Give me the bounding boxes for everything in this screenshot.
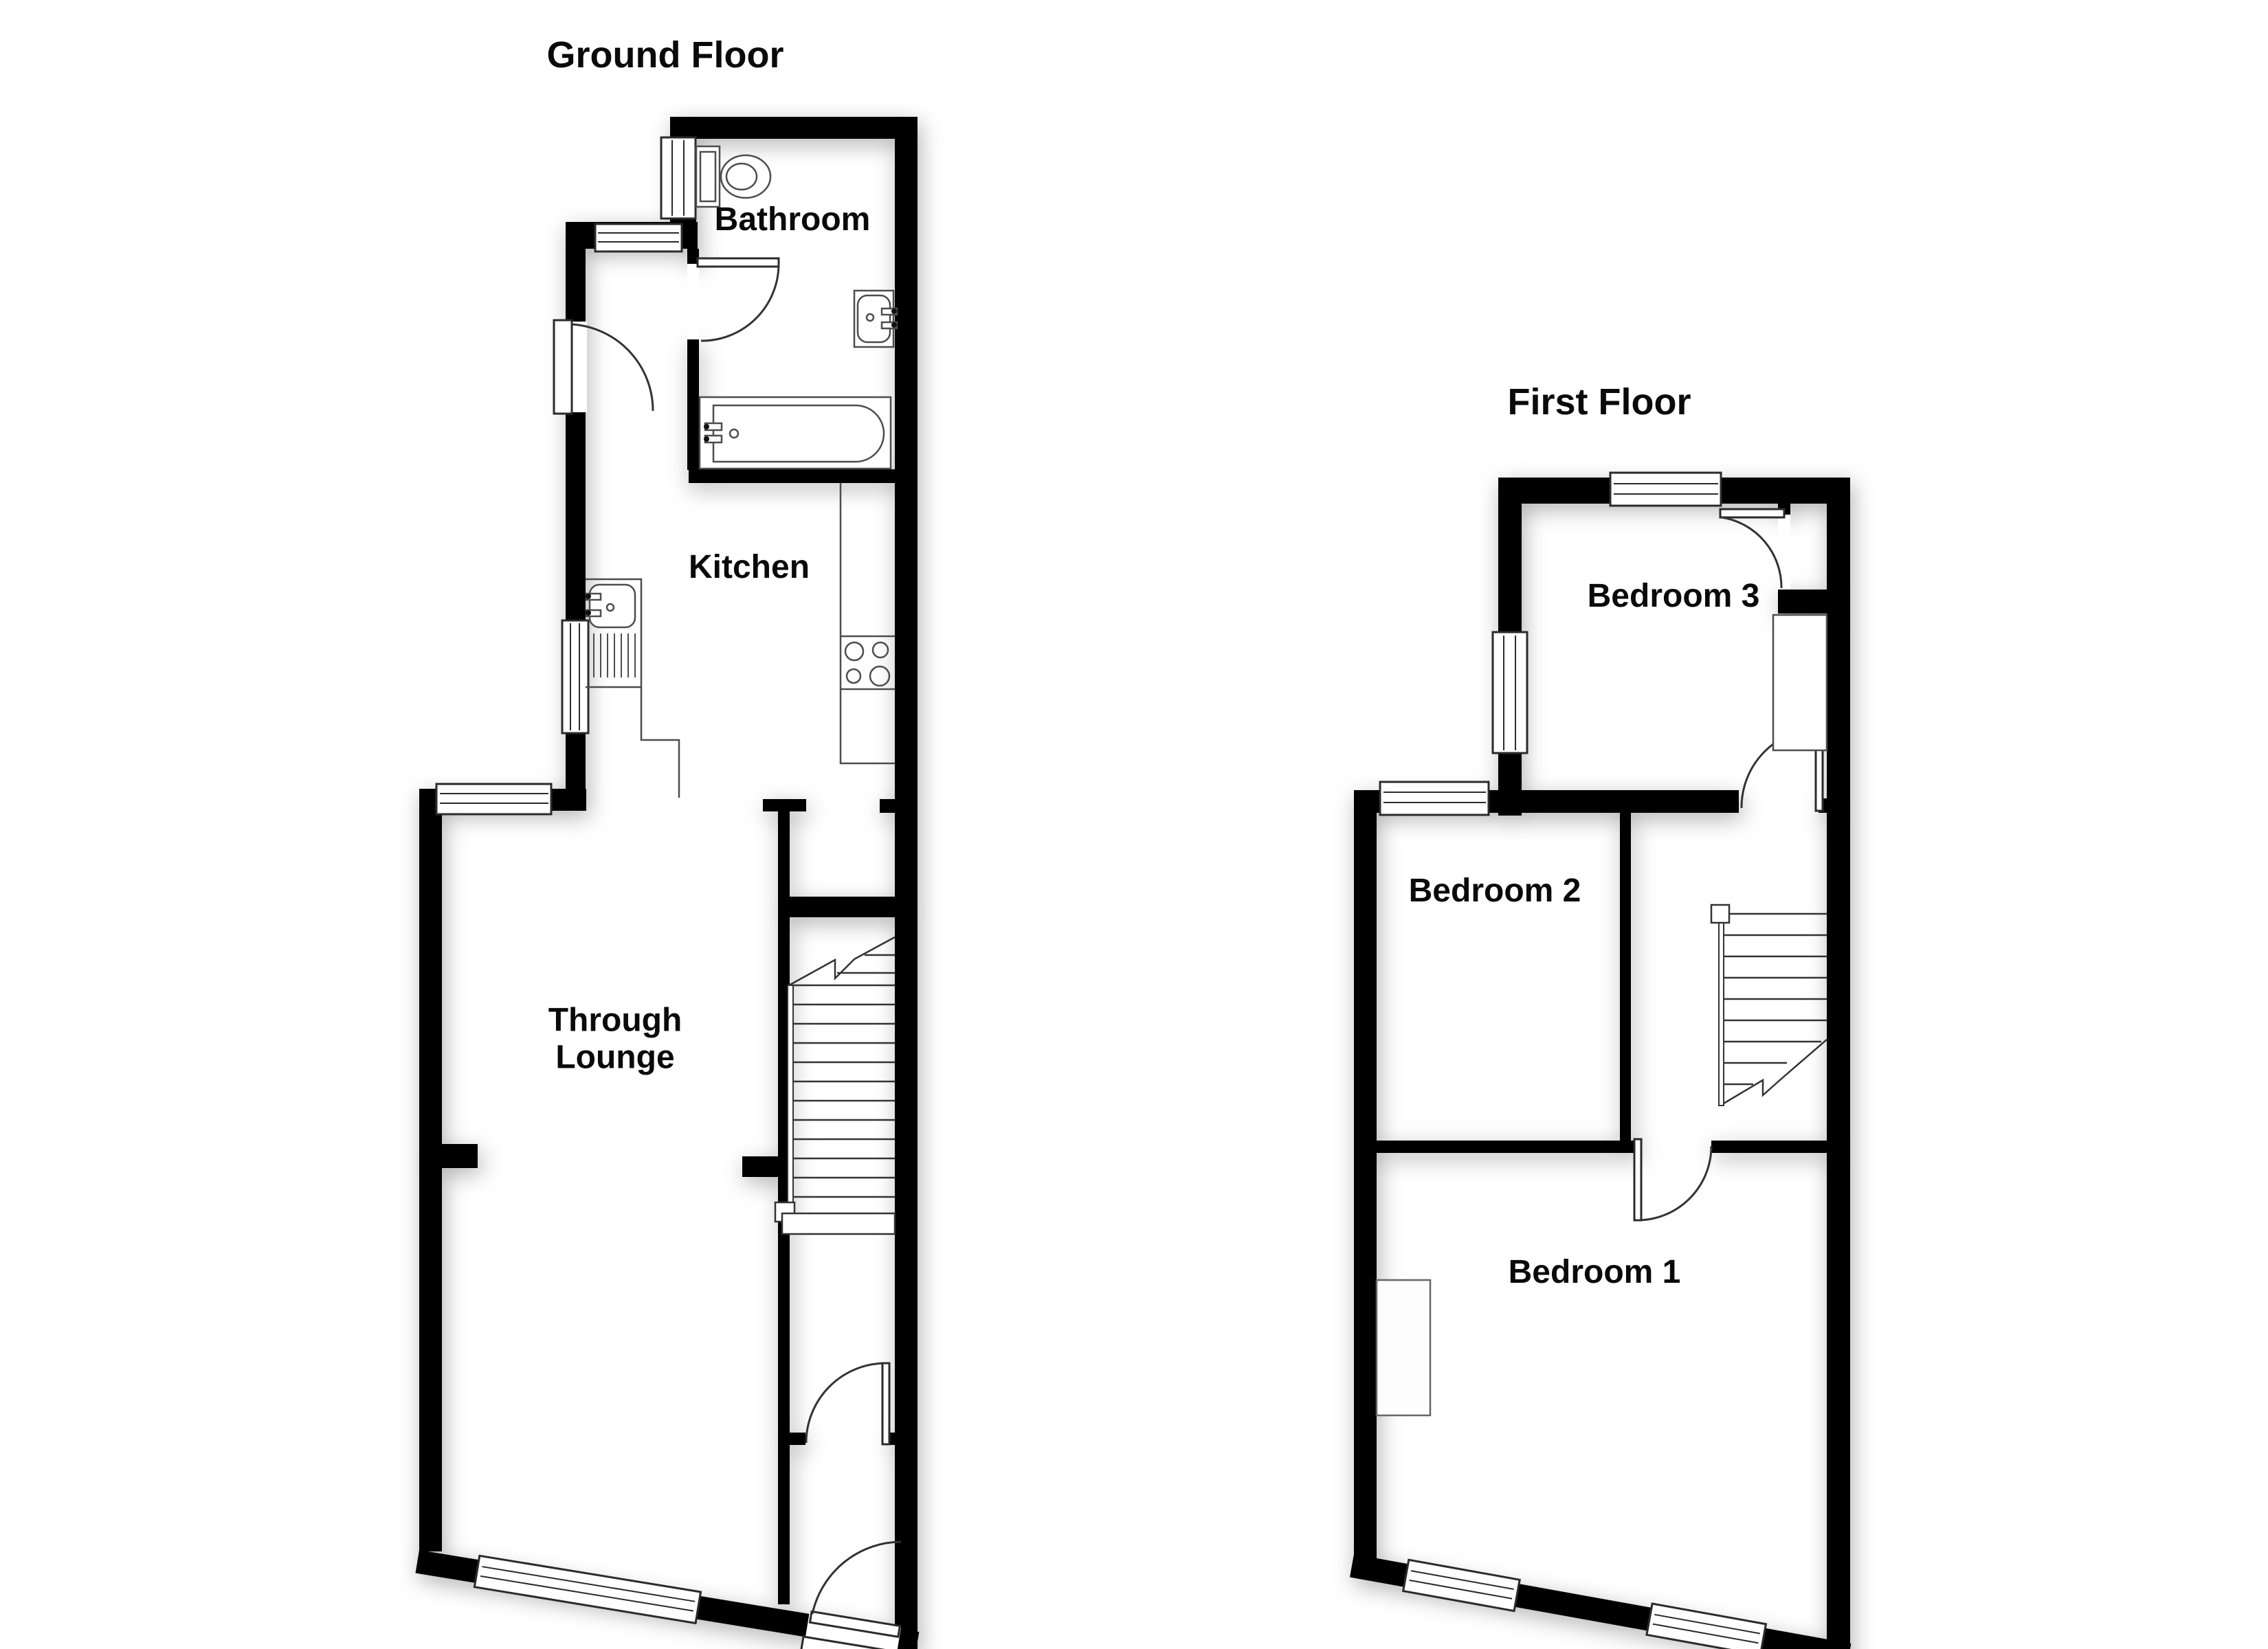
ground-floor-title: Ground Floor xyxy=(547,34,784,76)
room-label-kitchen: Kitchen xyxy=(689,549,810,586)
room-label-bedroom3: Bedroom 3 xyxy=(1588,578,1760,615)
room-label-bathroom: Bathroom xyxy=(715,201,871,238)
room-label-lounge: Through Lounge xyxy=(502,1002,729,1076)
labels-layer: Ground Floor First Floor Bathroom Kitche… xyxy=(0,0,2268,1649)
room-label-bedroom1: Bedroom 1 xyxy=(1509,1254,1681,1291)
floorplan-page: Ground Floor First Floor Bathroom Kitche… xyxy=(0,0,2268,1649)
first-floor-title: First Floor xyxy=(1508,381,1691,423)
room-label-bedroom2: Bedroom 2 xyxy=(1409,873,1581,910)
